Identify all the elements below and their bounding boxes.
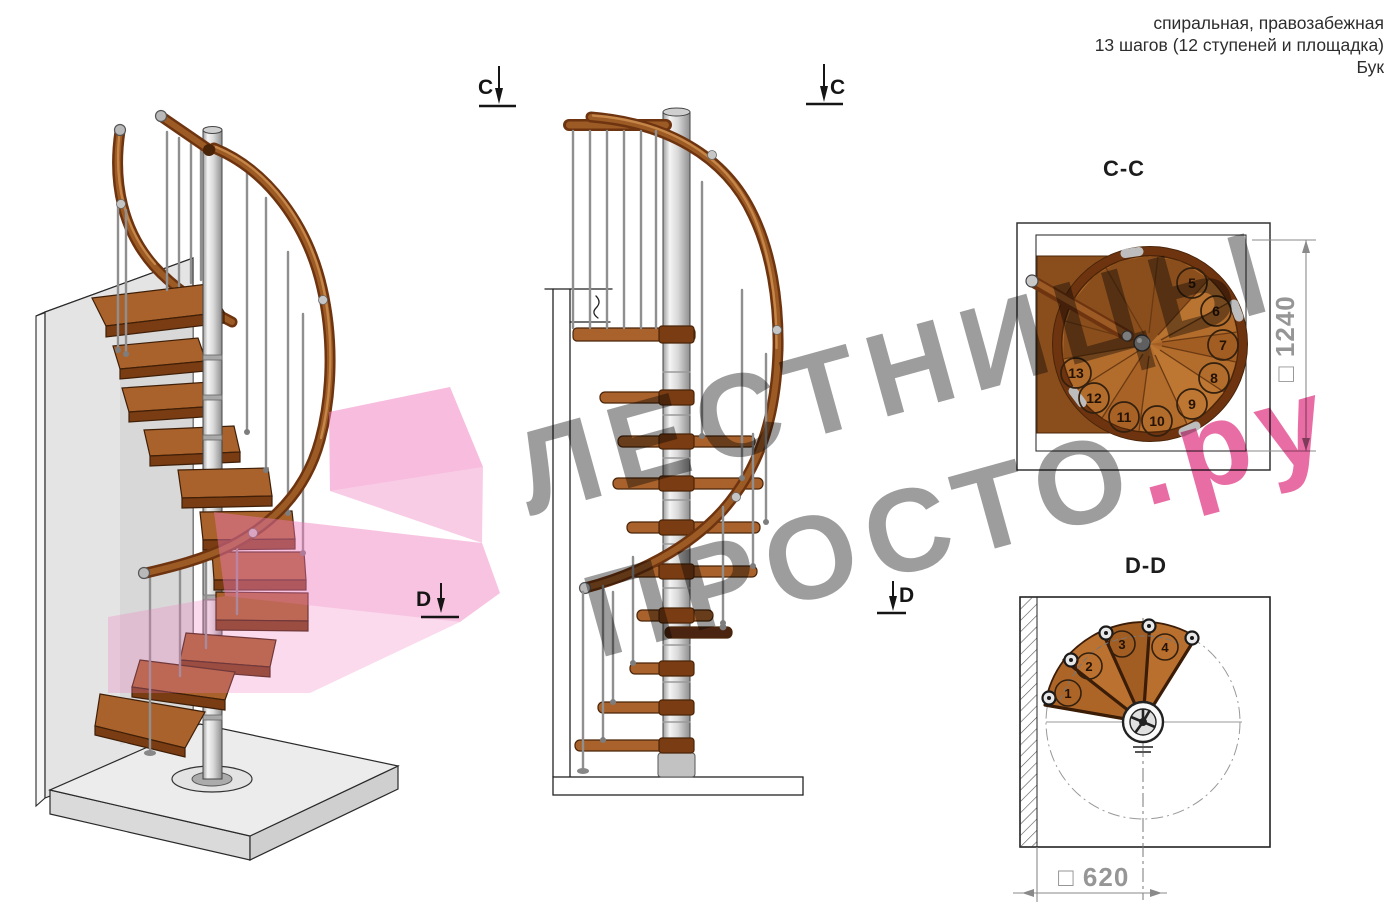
svg-text:12: 12 — [1086, 390, 1102, 406]
svg-text:C: C — [830, 76, 845, 99]
blueprint-canvas: C C D D C-C — [0, 0, 1400, 922]
spec-note-type: спиральная, правозабежная — [1095, 12, 1384, 34]
svg-text:10: 10 — [1149, 413, 1165, 429]
svg-text:C: C — [478, 76, 493, 99]
svg-text:1: 1 — [1064, 686, 1071, 701]
spec-note: спиральная, правозабежная 13 шагов (12 с… — [1095, 12, 1384, 78]
svg-text:D: D — [416, 588, 431, 611]
dd-title: D-D — [1125, 553, 1167, 578]
svg-text:4: 4 — [1161, 640, 1169, 655]
cc-section-view: C-C — [1017, 156, 1316, 470]
cc-title: C-C — [1103, 156, 1145, 181]
floor-slab-elevation — [553, 777, 803, 795]
spec-note-material: Бук — [1095, 56, 1384, 78]
svg-text:13: 13 — [1068, 365, 1084, 381]
section-marker-d-right: D — [877, 581, 914, 613]
dd-wall-hatch — [1020, 597, 1037, 847]
staircase-drawing: C C D D C-C — [0, 0, 1400, 922]
dd-section-view: D-D — [1013, 553, 1270, 902]
svg-text:8: 8 — [1210, 370, 1218, 386]
svg-text:11: 11 — [1117, 409, 1132, 425]
svg-text:2: 2 — [1085, 659, 1092, 674]
section-marker-c-right: C — [806, 64, 845, 104]
svg-text:7: 7 — [1219, 337, 1227, 353]
spec-note-steps: 13 шагов (12 ступеней и площадка) — [1095, 34, 1384, 56]
front-elevation-view — [545, 108, 803, 795]
svg-text:3: 3 — [1118, 637, 1125, 652]
section-marker-c-left: C — [478, 66, 516, 106]
svg-text:5: 5 — [1188, 275, 1196, 291]
svg-text:D: D — [899, 584, 914, 607]
cc-dimension-label: □ 1240 — [1270, 295, 1300, 382]
dd-dimension-label: □ 620 — [1058, 862, 1129, 892]
svg-text:9: 9 — [1188, 396, 1196, 412]
svg-text:6: 6 — [1212, 303, 1220, 319]
